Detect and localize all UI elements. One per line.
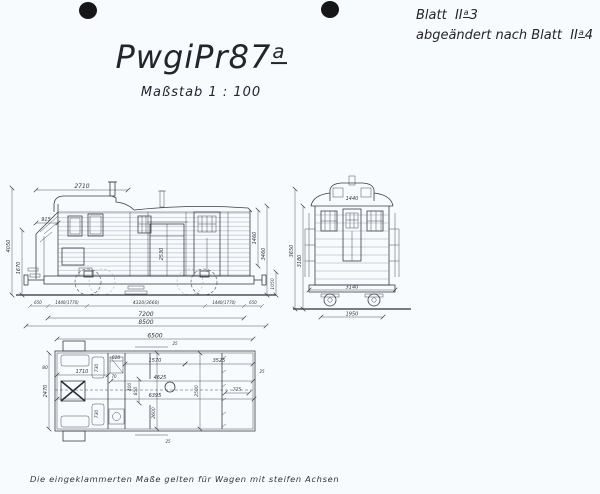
plan-view-drawing: 6500 25 620 1570 3525 80 1710 70 2470 73… [35, 331, 270, 451]
dim-775: 775 [233, 387, 242, 393]
dim-650-left: 650 [34, 300, 42, 305]
sheet-number-line1: Blatt IIa3 [416, 6, 593, 26]
side-underframe [44, 276, 254, 284]
dim-70: 70 [111, 374, 117, 379]
dim-3140: 3140 [346, 285, 359, 291]
dim-25-bottom: 25 [165, 439, 171, 444]
dim-8500: 8500 [138, 319, 153, 326]
dim-6395: 6395 [149, 393, 162, 399]
footnote-caption: Die eingeklammerten Maße gelten für Wage… [30, 474, 339, 484]
dim-915: 915 [41, 217, 51, 223]
side-cupola-roof [54, 196, 134, 212]
dim-2600: 2600 [151, 407, 157, 419]
dim-1710: 1710 [76, 369, 89, 375]
dim-1950: 1950 [346, 312, 359, 318]
dim-4050: 4050 [6, 240, 12, 253]
dim-2470: 2470 [43, 385, 49, 398]
dim-1670: 1670 [16, 262, 22, 275]
side-buffer-left [24, 275, 28, 285]
dim-wheelbase: 4320(3660) [133, 300, 160, 306]
dim-3460: 3460 [261, 248, 267, 261]
dim-850: 850 [133, 387, 139, 396]
dim-6500: 6500 [147, 333, 162, 340]
drawing-sheet: Blatt IIa3 abgeändert nach Blatt IIa4 Pw… [0, 0, 600, 494]
end-chimney [349, 176, 355, 185]
side-main-roof [134, 206, 252, 212]
dim-25-right: 25 [259, 369, 265, 374]
dim-1440-left: 1440(1770) [55, 300, 79, 305]
dim-7200: 7200 [138, 311, 153, 318]
dim-2710: 2710 [74, 183, 89, 190]
dim-3525: 3525 [213, 358, 226, 364]
punch-hole-left [79, 2, 97, 19]
dim-1440-right: 1440(1770) [212, 300, 236, 305]
scale-label: Maßstab 1 : 100 [96, 85, 306, 100]
plan-stove-box [109, 409, 124, 424]
dim-25-top: 25 [172, 341, 178, 346]
plan-end-step-bottom [63, 431, 85, 441]
side-buffer-right [262, 275, 266, 285]
plan-bench-top [61, 355, 89, 366]
dim-620: 620 [112, 355, 121, 361]
dim-1050: 1050 [270, 278, 276, 290]
plan-bench-bottom [61, 416, 89, 427]
punch-hole-right [321, 1, 339, 18]
title-block: PwgiPr87a Maßstab 1 : 100 [96, 38, 306, 100]
end-buffer-right [368, 294, 380, 306]
end-buffer-left [324, 294, 336, 306]
side-chimney [110, 182, 115, 196]
plan-stove [165, 382, 175, 392]
sheet-number-note: Blatt IIa3 abgeändert nach Blatt IIa4 [416, 6, 593, 46]
dim-80: 80 [42, 365, 48, 371]
dim-2530: 2530 [159, 248, 165, 261]
dim-1440-cupola: 1440 [346, 196, 359, 202]
page-title: PwgiPr87a [96, 38, 306, 76]
dim-2500: 2500 [194, 385, 200, 397]
plan-end-step-top [63, 341, 85, 351]
dim-400: 400 [127, 383, 133, 392]
dim-3180: 3180 [297, 255, 303, 268]
end-view-drawing: 1440 3650 3180 3140 19 [283, 173, 418, 325]
dim-4625: 4625 [154, 375, 167, 381]
side-elevation-drawing: 2710 915 4050 1670 2530 1460 3460 1050 6… [0, 176, 292, 344]
dim-3650: 3650 [289, 245, 295, 258]
dim-730-bottom: 730 [94, 410, 100, 419]
sheet-number-line2: abgeändert nach Blatt IIa4 [416, 26, 593, 46]
dim-1460: 1460 [252, 232, 258, 245]
dim-1570: 1570 [149, 358, 162, 364]
side-roof-vent [160, 191, 164, 207]
side-body-planking [58, 212, 250, 276]
dim-730-top: 730 [94, 364, 100, 373]
dim-650-right: 650 [249, 300, 257, 305]
